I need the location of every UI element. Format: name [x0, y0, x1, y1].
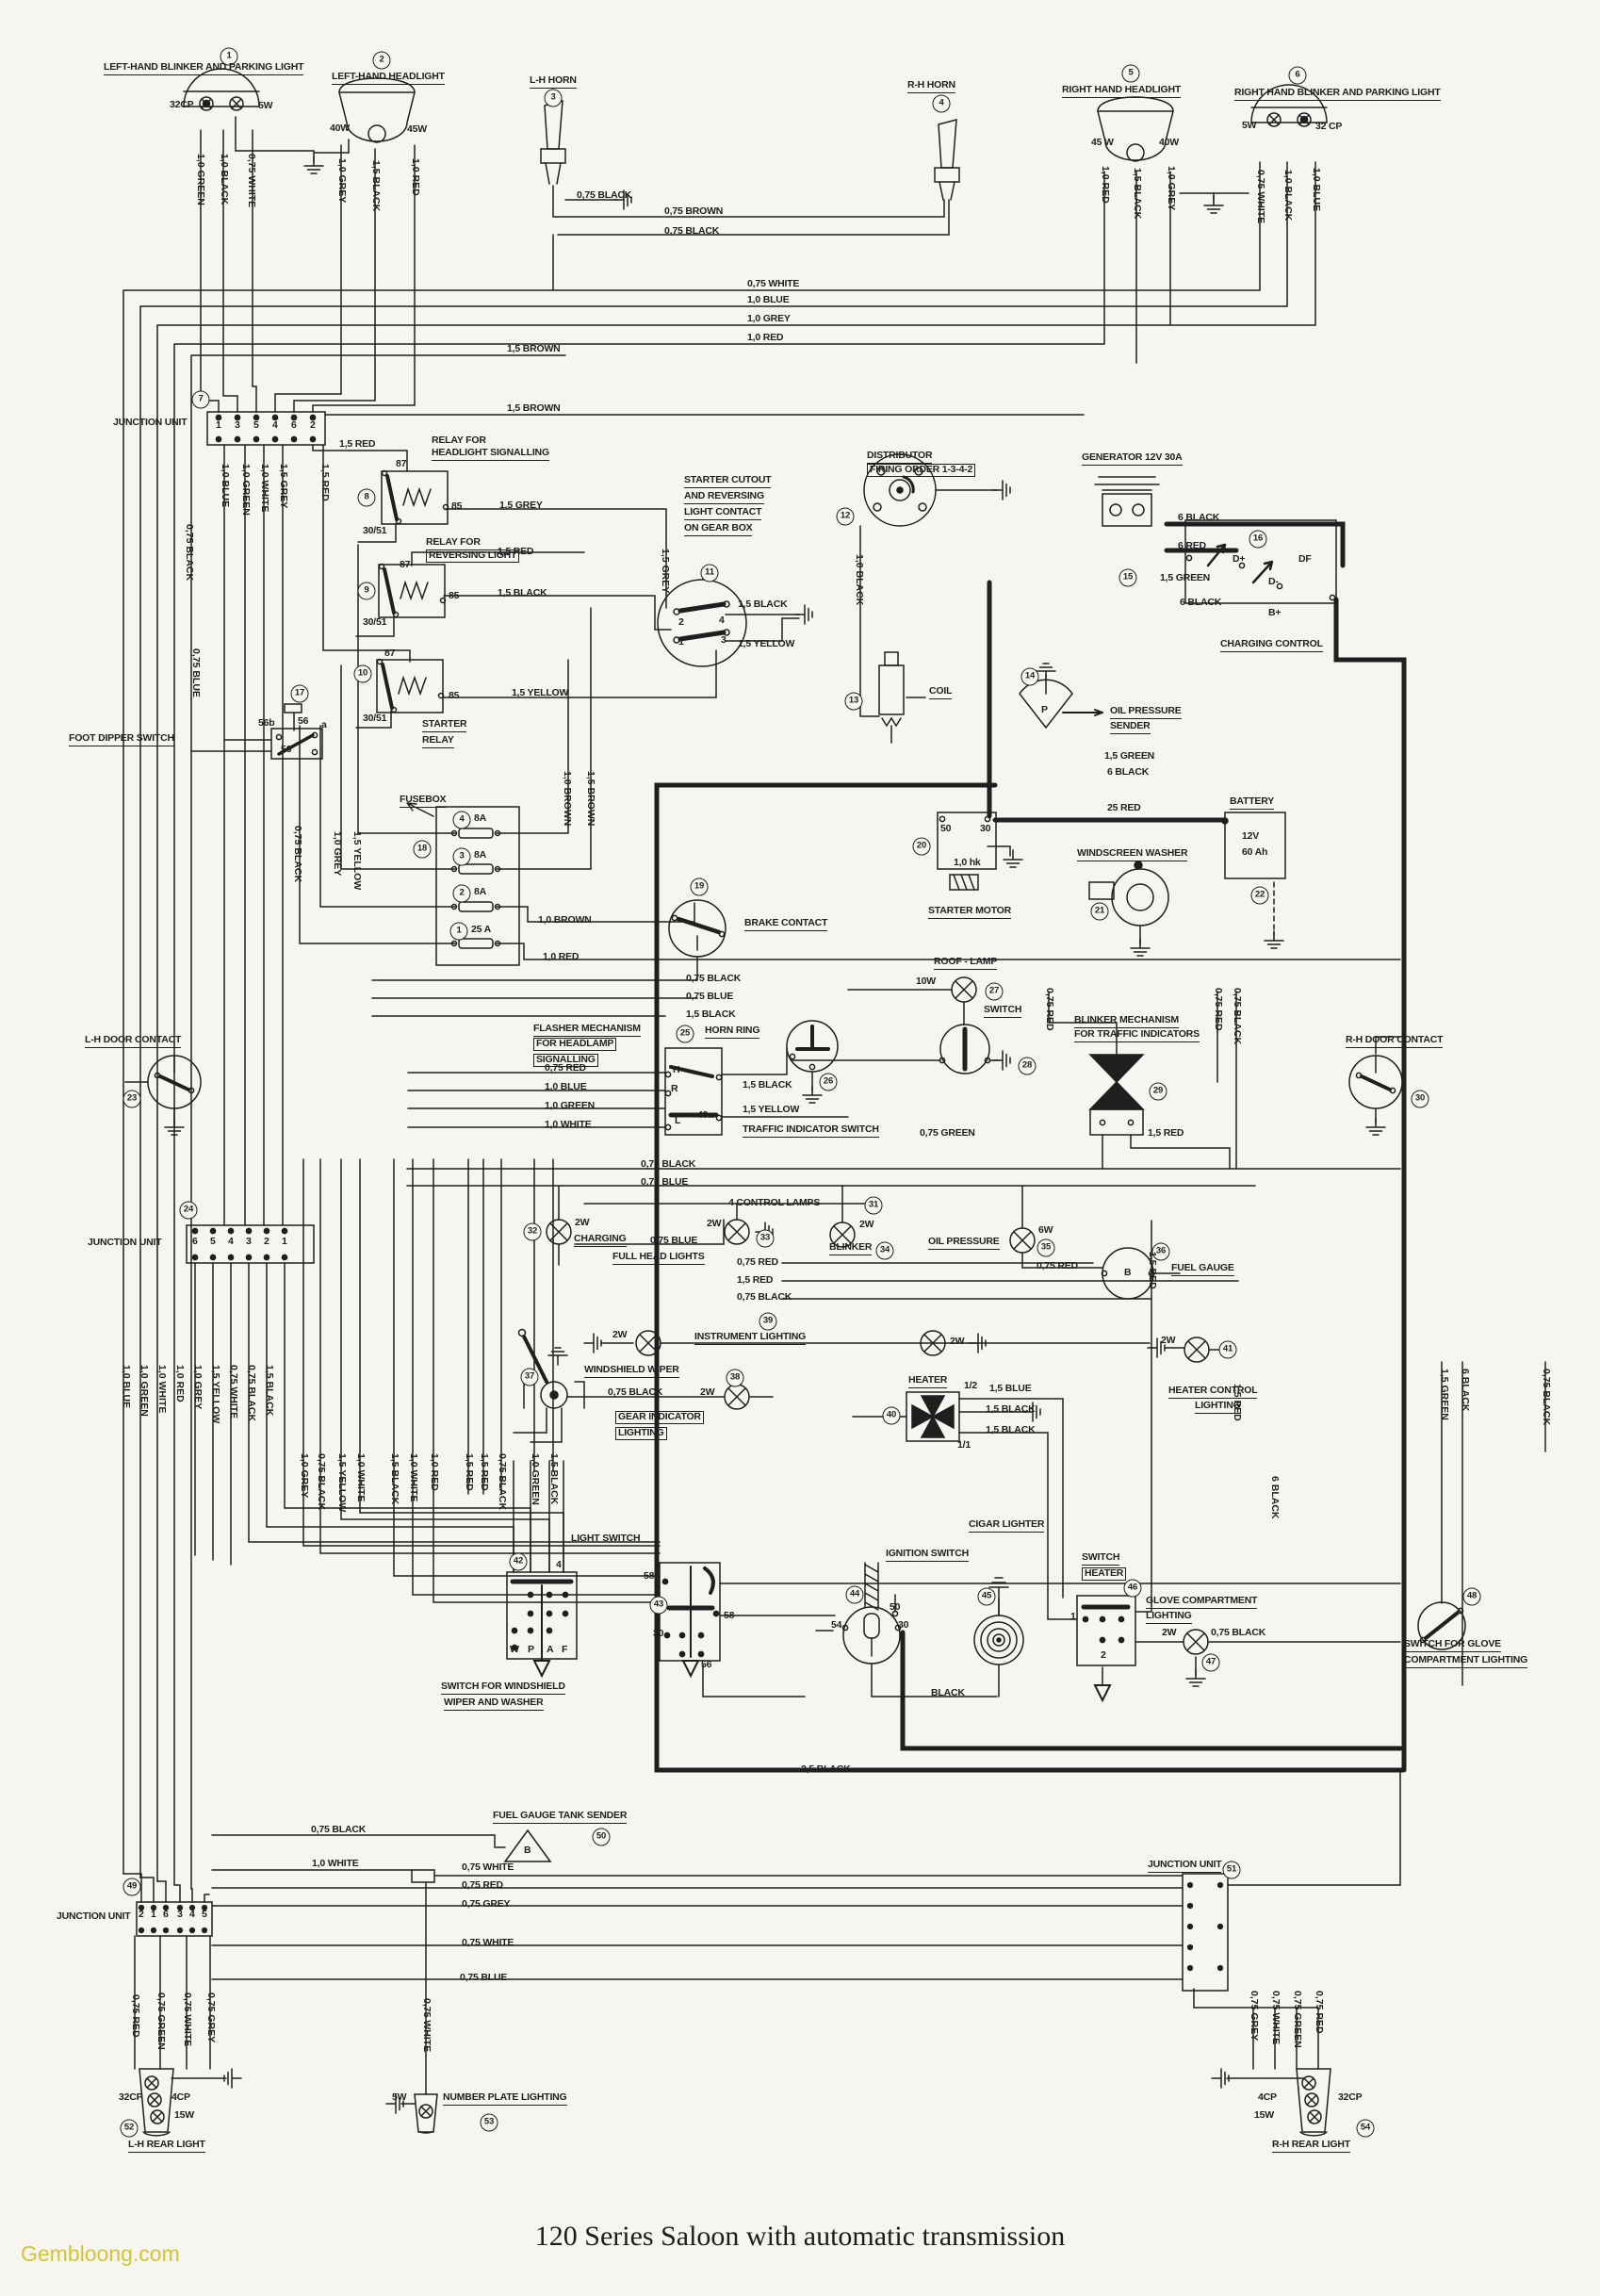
wire-label: 30 — [980, 824, 990, 835]
wire-label: 6 BLACK — [1180, 598, 1221, 609]
wire-label: 87 — [384, 648, 395, 660]
wire-label: 5W — [392, 2092, 406, 2104]
component-number: 48 — [1463, 1588, 1481, 1606]
wire-label: 1/1 — [957, 1440, 971, 1451]
wire-label: 2W — [1162, 1628, 1176, 1639]
wire-label: 1,5 YELLOW — [738, 639, 794, 650]
wire-label: 0,75 BLUE — [650, 1236, 697, 1247]
wire-label: 2W — [575, 1218, 589, 1229]
wire-label: 0,75 GREY — [204, 1993, 216, 2042]
component-number: 2 — [373, 52, 391, 70]
wire-label: RELAY FOR — [432, 435, 486, 447]
wire-label: 1,5 BLACK — [986, 1425, 1035, 1436]
wire-label: 1,0 BLUE — [545, 1082, 587, 1093]
wire-label: 1,0 GREEN — [545, 1101, 595, 1112]
wire-label: 1,5 BROWN — [584, 771, 596, 826]
wire-label: 45W — [407, 124, 427, 136]
wire-label: 32CP — [119, 2092, 142, 2104]
wire-label: 0,75 BLACK — [1540, 1369, 1551, 1425]
wire-label: 6 — [291, 420, 297, 432]
component-number: 10 — [354, 665, 372, 683]
wire-label: 1,5 GREY — [659, 549, 670, 593]
component-number: 12 — [837, 508, 855, 526]
component-number: 3 — [545, 90, 563, 107]
component-label: CIGAR LIGHTER — [969, 1519, 1044, 1533]
wire-label: 1,0 BROWN — [561, 771, 572, 826]
wire-label: 40W — [330, 123, 350, 135]
wire-label: 1,0 WHITE — [407, 1453, 418, 1501]
wire-label: 0,75 BLACK — [245, 1365, 256, 1421]
wire-label: 1,0 BLACK — [218, 154, 229, 205]
wire-label: F — [562, 1645, 567, 1656]
wire-label: 1,5 RED — [1148, 1128, 1184, 1140]
wire-label: 2 — [264, 1237, 269, 1248]
component-label: HEATER — [1082, 1567, 1126, 1581]
component-label: BRAKE CONTACT — [744, 918, 827, 931]
component-number: 26 — [820, 1074, 838, 1091]
component-number: 39 — [759, 1313, 777, 1331]
component-label: GLOVE COMPARTMENT — [1146, 1596, 1257, 1609]
component-label: RIGHT HAND HEADLIGHT — [1062, 85, 1181, 98]
wire-label: 1,5 BROWN — [507, 403, 561, 415]
wire-label: 85 — [449, 591, 459, 602]
wire-label: 1 — [282, 1237, 287, 1248]
wire-label: 1,0 RED — [543, 952, 579, 963]
component-label: LIGHTING — [615, 1427, 667, 1440]
wire-label: 40W — [1159, 138, 1179, 149]
wire-label: 1,5 GREEN — [1160, 573, 1210, 584]
component-label: NUMBER PLATE LIGHTING — [443, 2092, 567, 2106]
component-label: LIGHT CONTACT — [684, 507, 761, 520]
wire-label: 30/51 — [363, 713, 386, 725]
wire-label: 1,0 WHITE — [155, 1365, 167, 1413]
wire-label: 1,0 BLUE — [747, 295, 790, 306]
wire-label: 1,0 WHITE — [312, 1859, 359, 1870]
wire-label: 4 — [556, 1560, 562, 1571]
component-number: 38 — [727, 1369, 744, 1387]
component-label: AND REVERSING — [684, 491, 764, 504]
wiring-diagram-page: 1LEFT-HAND BLINKER AND PARKING LIGHT2LEF… — [0, 0, 1600, 2296]
wire-label: 2W — [707, 1219, 721, 1230]
component-label: R-H DOOR CONTACT — [1346, 1035, 1443, 1048]
wire-label: H — [673, 1065, 679, 1076]
wire-label: 1,0 GREY — [1165, 166, 1176, 210]
wire-label: 1,5 RED — [1146, 1252, 1157, 1289]
component-number: 47 — [1202, 1654, 1220, 1672]
wire-label: 2W — [612, 1330, 627, 1341]
wire-label: 0,75 WHITE — [462, 1938, 514, 1949]
component-label: LIGHTING — [1146, 1611, 1192, 1624]
component-label: L-H DOOR CONTACT — [85, 1035, 181, 1048]
wire-label: 1,0 BLACK — [853, 554, 864, 605]
wire-label: 1,0 RED — [409, 158, 420, 196]
component-number: 32 — [524, 1223, 542, 1241]
wire-label: 0,75 WHITE — [420, 1998, 432, 2052]
wire-label: 85 — [449, 691, 459, 702]
wire-label: 1,5 BROWN — [507, 344, 561, 355]
wire-label: 1,5 RED — [1231, 1384, 1242, 1421]
wire-label: 1,5 BLACK — [986, 1404, 1035, 1416]
component-number: 8 — [358, 489, 376, 507]
wire-label: 0,75 RED — [1043, 988, 1054, 1031]
wire-label: 1,0 GREY — [331, 831, 342, 876]
component-label: FOOT DIPPER SWITCH — [69, 733, 174, 746]
wire-label: 25 A — [471, 925, 491, 936]
wire-label: 4 — [189, 1910, 195, 1921]
wire-label: 56 — [701, 1660, 711, 1671]
component-label: R-H REAR LIGHT — [1272, 2140, 1350, 2153]
wire-label: 50 — [940, 824, 951, 835]
wire-label: 0,75 RED — [129, 1994, 140, 2038]
wire-label: 30 — [898, 1620, 908, 1632]
component-number: 11 — [701, 565, 719, 582]
component-number: 35 — [1037, 1239, 1055, 1257]
wire-label: 0,75 RED — [1037, 1261, 1078, 1272]
wire-label: 0,75 GREEN — [155, 1993, 166, 2050]
wire-label: 1/2 — [964, 1381, 977, 1392]
wire-label: 1,0 GREEN — [138, 1365, 149, 1417]
component-number: 50 — [593, 1829, 611, 1846]
wire-label: 1,5 GREY — [499, 500, 543, 512]
component-number: 42 — [510, 1553, 528, 1571]
component-number: 27 — [986, 983, 1004, 1001]
component-label: HORN RING — [705, 1025, 759, 1039]
wire-label: DF — [1298, 554, 1312, 566]
wire-label: 1,0 WHITE — [258, 464, 269, 512]
wire-label: 1,0 GREY — [191, 1365, 203, 1409]
wire-label: 3 — [177, 1910, 183, 1921]
wire-label: 2 — [678, 617, 684, 629]
wire-label: 1 — [151, 1910, 156, 1921]
component-label: SWITCH FOR WINDSHIELD — [441, 1681, 565, 1695]
wire-label: 2W — [950, 1337, 964, 1348]
component-number: 30 — [1412, 1091, 1429, 1108]
wire-label: 1 — [1070, 1612, 1076, 1623]
component-label: BATTERY — [1230, 796, 1274, 810]
wire-label: 8A — [474, 850, 486, 861]
wire-label: 0,75 BLACK — [311, 1825, 366, 1836]
wire-label: 1,5 YELLOW — [743, 1105, 799, 1116]
component-number: 6 — [1289, 67, 1307, 85]
wire-label: 0,75 BLACK — [1211, 1628, 1265, 1639]
wire-label: 2W — [1161, 1336, 1175, 1347]
wire-label: P — [528, 1645, 534, 1656]
component-label: FULL HEAD LIGHTS — [612, 1252, 705, 1265]
wire-label: 58b — [644, 1571, 661, 1583]
wire-label: 2,5 BLACK — [801, 1764, 850, 1776]
component-number: 34 — [876, 1242, 894, 1260]
component-label: WINDSHIELD WIPER — [584, 1365, 679, 1378]
wire-label: 45 W — [1091, 138, 1114, 149]
wire-label: 1,5 YELLOW — [335, 1453, 347, 1512]
wire-label: 1,5 RED — [737, 1275, 773, 1287]
wire-label: 0,75 BLACK — [641, 1159, 695, 1171]
wire-label: 1,0 BROWN — [538, 915, 592, 927]
wire-label: 32CP — [170, 100, 193, 111]
wire-label: 4 — [719, 615, 725, 627]
wire-label: 87 — [396, 459, 406, 470]
component-label: L-H HORN — [530, 75, 577, 89]
wire-label: 0,75 BLACK — [577, 190, 631, 202]
wire-label: 1,0 GREY — [747, 314, 791, 325]
component-number: 2 — [453, 885, 471, 903]
wire-label: 1,5 BLACK — [743, 1080, 792, 1091]
wire-label: 56b — [258, 718, 275, 730]
wire-label: 0,75 BLUE — [686, 992, 733, 1003]
wire-label: 56 — [298, 716, 308, 728]
wire-label: 6 BLACK — [1107, 767, 1149, 779]
wire-label: 8A — [474, 813, 486, 825]
wire-label: 0,75 BLACK — [1231, 988, 1242, 1044]
component-label: LEFT-HAND BLINKER AND PARKING LIGHT — [104, 62, 303, 75]
component-label: ROOF - LAMP — [934, 957, 997, 970]
component-label: CHARGING — [574, 1234, 627, 1247]
wire-label: 1,5 YELLOW — [351, 831, 362, 890]
wire-label: 30/51 — [363, 617, 386, 629]
wire-label: 6 BLACK — [1268, 1476, 1280, 1519]
wire-label: 10W — [916, 976, 936, 988]
wire-label: 2 — [310, 420, 316, 432]
wire-label: B — [524, 1845, 531, 1857]
wire-label: 1,5 BLACK — [1131, 168, 1142, 219]
wire-label: 1,0 RED — [747, 333, 783, 344]
wire-label: 1,5 BLACK — [498, 588, 547, 599]
component-label: FLASHER MECHANISM — [533, 1024, 641, 1037]
wire-label: 1,5 RED — [339, 439, 375, 451]
component-label: STARTER — [422, 719, 466, 732]
wire-label: 15W — [1254, 2110, 1274, 2122]
wire-label: 0,75 WHITE — [227, 1365, 238, 1419]
wire-label: 0,75 BLUE — [460, 1973, 507, 1984]
component-label: SENDER — [1110, 721, 1151, 734]
component-number: 7 — [192, 391, 210, 409]
wire-label: 0,75 BLACK — [608, 1387, 662, 1399]
wire-label: 0,75 GREEN — [1291, 1991, 1302, 2048]
component-label: COMPARTMENT LIGHTING — [1404, 1655, 1527, 1668]
component-number: 25 — [677, 1025, 694, 1043]
component-number: 49 — [123, 1878, 141, 1896]
component-number: 40 — [883, 1407, 901, 1425]
wire-label: 8A — [474, 887, 486, 898]
wire-label: 0,75 WHITE — [245, 154, 256, 207]
component-label: ON GEAR BOX — [684, 523, 752, 536]
wire-label: 0,75 RED — [1313, 1991, 1324, 2034]
wire-label: 87 — [400, 560, 410, 571]
component-label: FUEL GAUGE TANK SENDER — [493, 1811, 627, 1824]
wire-label: R — [671, 1084, 678, 1095]
wire-label: 5 — [253, 420, 259, 432]
component-label: IGNITION SWITCH — [886, 1549, 969, 1562]
wire-label: 1,5 GREY — [277, 464, 288, 508]
wire-label: P — [1041, 705, 1048, 716]
component-label: OIL PRESSURE — [928, 1237, 1000, 1250]
component-number: 31 — [865, 1197, 883, 1215]
diagram-caption: 120 Series Saloon with automatic transmi… — [0, 2221, 1600, 2253]
component-number: 43 — [650, 1597, 668, 1615]
wire-label: 1,5 YELLOW — [209, 1365, 220, 1423]
component-number: 19 — [691, 878, 709, 896]
wire-label: 1,5 YELLOW — [512, 688, 568, 699]
wire-label: 49a — [697, 1110, 713, 1122]
wire-label: 1,5 GREEN — [1438, 1369, 1449, 1420]
component-label: SWITCH FOR GLOVE — [1404, 1639, 1501, 1652]
wire-label: 0,75 BLACK — [686, 974, 741, 985]
wire-label: 1,5 RED — [318, 464, 330, 501]
wire-label: 0,75 BLACK — [664, 226, 719, 238]
wire-label: 3 — [246, 1237, 252, 1248]
component-label: OIL PRESSURE — [1110, 706, 1182, 719]
wire-label: 1,0 RED — [173, 1365, 185, 1402]
component-label: SWITCH — [984, 1005, 1021, 1018]
wire-label: 6W — [1038, 1225, 1053, 1237]
wire-label: 0,75 BLACK — [291, 826, 302, 882]
component-number: 23 — [123, 1091, 141, 1108]
wire-label: 58 — [724, 1611, 734, 1622]
wire-label: 1,0 BLUE — [120, 1365, 131, 1408]
component-number: 5 — [1122, 65, 1140, 83]
wire-label: 15W — [174, 2110, 194, 2122]
component-label: GENERATOR 12V 30A — [1082, 452, 1183, 466]
wire-label: 1,5 BLACK — [738, 599, 787, 611]
wire-label: 4 CONTROL LAMPS — [728, 1198, 820, 1209]
component-label: GEAR INDICATOR — [615, 1411, 704, 1424]
wire-label: 1,5 BLACK — [369, 160, 381, 211]
wire-label: 25 RED — [1107, 803, 1141, 814]
wire-label: 0,75 BLUE — [641, 1177, 688, 1189]
wire-label: 1,5 BLACK — [547, 1453, 559, 1504]
wire-label: 0,75 BROWN — [664, 206, 723, 218]
wire-label: 6 BLACK — [1459, 1369, 1470, 1412]
wire-label: 2W — [700, 1387, 714, 1399]
component-label: WIPER AND WASHER — [444, 1697, 544, 1711]
wire-label: 0,75 WHITE — [1254, 170, 1265, 223]
component-label: TRAFFIC INDICATOR SWITCH — [743, 1124, 879, 1138]
wire-label: 1,0 BLUE — [1310, 168, 1321, 211]
wire-label: 1,5 BLUE — [989, 1384, 1032, 1395]
component-label: WINDSCREEN WASHER — [1077, 848, 1187, 861]
wire-label: 1,0 GREY — [298, 1453, 309, 1498]
component-label: STARTER CUTOUT — [684, 475, 771, 488]
wire-label: 4 — [228, 1237, 234, 1248]
wire-label: 0,75 WHITE — [747, 279, 799, 290]
component-label: DISTRIBUTOR — [867, 451, 932, 464]
wire-label: 1,0 GREEN — [194, 154, 205, 205]
component-label: SWITCH — [1082, 1552, 1119, 1566]
component-number: 28 — [1019, 1058, 1037, 1075]
component-label: FIRING ORDER 1-3-4-2 — [867, 464, 975, 477]
component-label: FUSEBOX — [400, 795, 446, 808]
wire-label: D+ — [1233, 554, 1245, 566]
component-label: COIL — [929, 686, 952, 699]
wire-label: 0,75 RED — [737, 1257, 778, 1269]
wire-label: 32 CP — [1315, 122, 1342, 133]
component-label: CHARGING CONTROL — [1220, 639, 1323, 652]
wire-label: 60 Ah — [1242, 847, 1267, 859]
wire-label: LIGHT SWITCH — [571, 1533, 640, 1545]
diagram-labels: 1LEFT-HAND BLINKER AND PARKING LIGHT2LEF… — [0, 0, 1600, 2296]
component-label: BLINKER — [829, 1242, 872, 1255]
wire-label: 2W — [859, 1220, 873, 1231]
wire-label: 0,75 WHITE — [181, 1993, 192, 2046]
wire-label: 1 — [678, 637, 684, 648]
wire-label: 1,0 GREEN — [529, 1453, 540, 1505]
wire-label: 30 — [653, 1629, 663, 1640]
component-number: 51 — [1223, 1861, 1241, 1879]
component-number: 44 — [846, 1586, 864, 1604]
wire-label: JUNCTION UNIT — [88, 1238, 161, 1249]
component-label: BLINKER MECHANISM — [1074, 1015, 1179, 1028]
wire-label: 0,75 GREY — [1248, 1991, 1259, 2041]
component-number: 20 — [913, 838, 931, 856]
component-number: 1 — [450, 923, 468, 941]
wire-label: 1,5 BLACK — [263, 1365, 274, 1416]
wire-label: JUNCTION UNIT — [113, 418, 187, 429]
component-label: STARTER MOTOR — [928, 906, 1011, 919]
component-number: 21 — [1091, 903, 1109, 921]
wire-label: 0,75 WHITE — [1269, 1991, 1281, 2044]
wire-label: 1,0 BLUE — [219, 464, 230, 507]
wire-label: 0,75 RED — [462, 1880, 503, 1892]
component-label: LEFT-HAND HEADLIGHT — [332, 72, 445, 85]
wire-label: 1,0 WHITE — [354, 1453, 366, 1501]
wire-label: 0,75 BLACK — [737, 1292, 792, 1304]
component-number: 3 — [453, 848, 471, 866]
component-label: HEATER CONTROL — [1168, 1386, 1257, 1399]
component-label: HEATER — [908, 1375, 947, 1388]
wire-label: 56 — [281, 745, 291, 756]
wire-label: 1,0 RED — [1099, 166, 1110, 204]
wire-label: 0,75 BLUE — [189, 648, 201, 697]
wire-label: JUNCTION UNIT — [57, 1911, 130, 1923]
wire-label: 4CP — [171, 2092, 190, 2104]
wire-label: 0,75 BLACK — [183, 524, 194, 581]
wire-label: 6 RED — [1178, 541, 1206, 552]
wire-label: 1,0 GREEN — [239, 464, 251, 516]
component-number: 14 — [1021, 668, 1039, 686]
wire-label: 0,75 GREEN — [920, 1128, 975, 1140]
component-number: 46 — [1124, 1580, 1142, 1598]
wire-label: 6 — [163, 1910, 169, 1921]
wire-label: 5 — [202, 1910, 207, 1921]
wire-label: 12V — [1242, 831, 1259, 843]
wire-label: 1,5 BLACK — [388, 1453, 400, 1504]
wire-label: 1,5 RED — [498, 547, 533, 558]
wire-label: 3 — [235, 420, 240, 432]
component-number: 24 — [180, 1202, 198, 1220]
component-label: FOR TRAFFIC INDICATORS — [1074, 1029, 1200, 1042]
wire-label: 2 — [1101, 1650, 1106, 1662]
wire-label: B — [1124, 1268, 1131, 1279]
component-number: 4 — [453, 812, 471, 829]
component-number: 54 — [1357, 2120, 1375, 2138]
wire-label: RELAY FOR — [426, 537, 481, 549]
component-label: INSTRUMENT LIGHTING — [694, 1332, 806, 1345]
component-number: 16 — [1249, 531, 1267, 549]
component-number: 9 — [358, 582, 376, 600]
component-number: 37 — [521, 1369, 539, 1386]
component-label: R-H HORN — [907, 80, 955, 93]
wire-label: 1,0 RED — [428, 1453, 439, 1491]
wire-label: 1,0 WHITE — [545, 1120, 592, 1131]
wire-label: 4 — [272, 420, 278, 432]
component-number: 18 — [414, 841, 432, 859]
wire-label: 54 — [831, 1620, 841, 1632]
component-number: 13 — [845, 693, 863, 711]
component-number: 29 — [1150, 1083, 1167, 1101]
wire-label: 1,5 BLACK — [686, 1009, 735, 1021]
component-label: JUNCTION UNIT — [1148, 1860, 1221, 1873]
wire-label: 0,75 BLACK — [315, 1453, 326, 1510]
